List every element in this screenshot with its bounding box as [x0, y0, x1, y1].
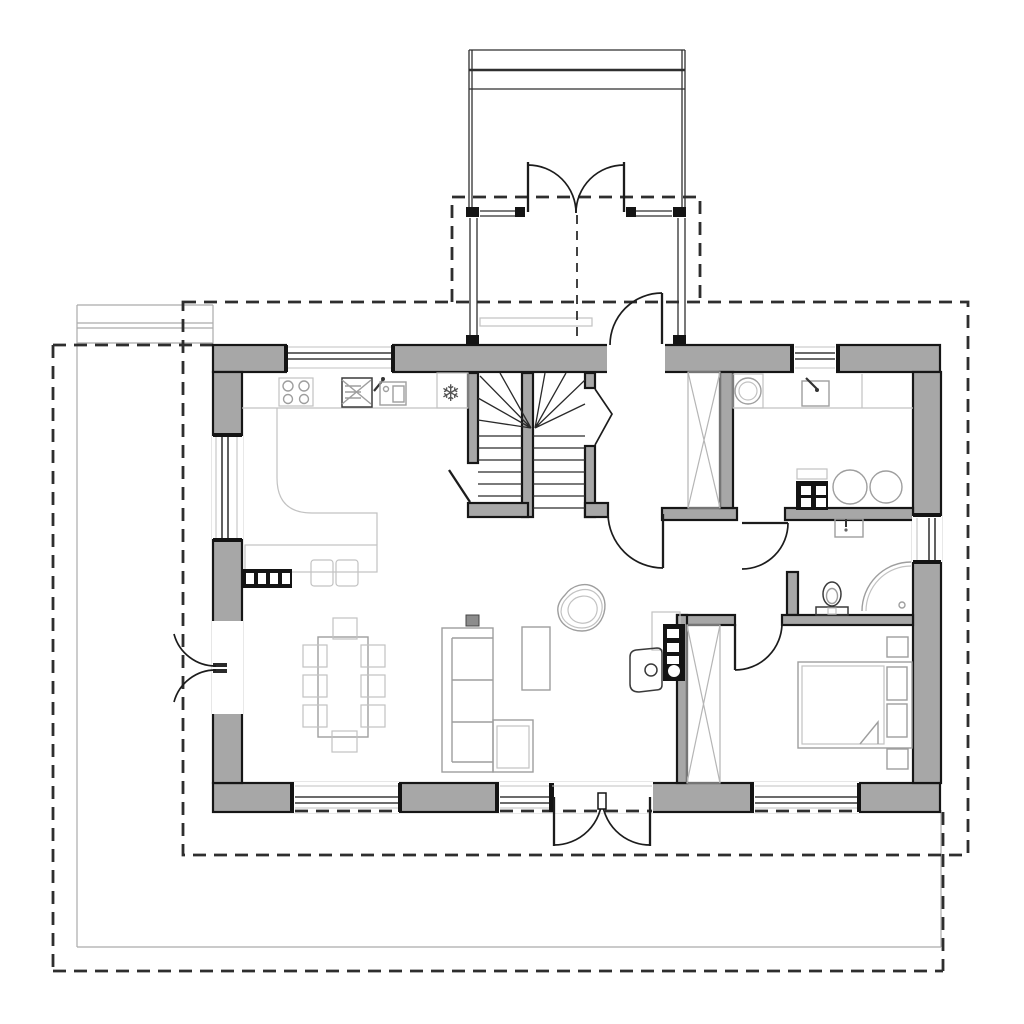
entry-mat — [480, 318, 592, 326]
wood-stove — [630, 648, 662, 692]
stair-south-wall-east — [585, 503, 608, 517]
wardrobe-shaft — [687, 625, 720, 783]
nightstand — [887, 637, 908, 657]
counter-return-edge — [277, 408, 377, 545]
shafts — [687, 372, 720, 783]
porch-post-base — [673, 335, 686, 345]
living-room — [442, 585, 685, 772]
dining-chair — [361, 645, 385, 667]
snowflake-icon: ❄ — [441, 381, 460, 407]
boiler-tanks — [833, 470, 902, 504]
duct-shaft — [688, 372, 720, 508]
stair-east-wall-top — [585, 373, 595, 388]
electrical-panel — [796, 481, 828, 510]
stair-treads-right-flight — [533, 436, 585, 508]
pillow — [887, 704, 907, 737]
kitchen-stair-door-leaf — [449, 470, 470, 502]
east-wall — [913, 372, 941, 783]
stair-spine-wall — [522, 373, 533, 517]
porch-side-walls — [469, 50, 685, 212]
pouf-chair — [558, 585, 605, 631]
kitchen: ❄ — [242, 373, 468, 586]
roof-dash-rect — [183, 302, 968, 855]
stair-west-wall — [468, 373, 478, 463]
porch-jamb-block — [626, 207, 636, 217]
wc-west-wall — [787, 572, 798, 615]
terrace-step-lines — [77, 323, 213, 343]
blanket-fold — [860, 722, 878, 744]
dining-chair — [303, 675, 327, 697]
bathroom-counter — [733, 374, 913, 408]
fireplace-unit — [630, 612, 685, 692]
interior-walls — [468, 372, 913, 783]
ground-slab-dashed-outline — [53, 345, 943, 971]
bedroom-door — [735, 623, 782, 670]
porch-post-base — [466, 335, 479, 345]
pillow — [887, 667, 907, 700]
porch-gate-swing-left — [528, 165, 576, 213]
bar-stool — [311, 560, 333, 586]
dining-chair — [361, 705, 385, 727]
roof-overhang-dashed-outline — [183, 197, 968, 855]
bathroom-faucet-icon — [806, 378, 817, 389]
oven — [342, 378, 372, 407]
exterior-walls — [213, 345, 941, 812]
shower-room — [816, 519, 911, 615]
porch-post-block — [466, 207, 479, 217]
washing-machine — [733, 374, 763, 408]
hall-south-wall — [662, 508, 737, 520]
fridge: ❄ — [437, 373, 468, 408]
radiator-cabinet — [242, 569, 292, 588]
bathroom-door — [742, 523, 788, 569]
floor-plan-drawing: ❄ — [0, 0, 1024, 1024]
living-room-door — [608, 514, 663, 568]
bedroom — [798, 637, 912, 769]
duct-east-wall — [720, 372, 733, 508]
bed — [798, 662, 912, 748]
shelf — [797, 469, 827, 479]
dining-chair — [361, 675, 385, 697]
dining-chair — [303, 645, 327, 667]
porch-post-block — [673, 207, 686, 217]
dining-chair — [332, 731, 357, 752]
bedroom-north-wall-east — [782, 615, 913, 625]
porch-jamb-block — [515, 207, 525, 217]
cooktop — [279, 378, 313, 406]
dining-area — [242, 569, 385, 752]
bathroom — [733, 374, 913, 510]
bathroom-sink — [802, 378, 829, 406]
hall-stair-door — [595, 389, 612, 445]
dining-chair — [333, 618, 357, 639]
floor-plan-canvas: ❄ — [0, 0, 1024, 1024]
side-table — [466, 615, 479, 626]
toilet — [816, 582, 848, 615]
stair-south-wall-west — [468, 503, 528, 517]
patio-door-mullion — [598, 793, 606, 809]
porch-gate-swing-right — [576, 165, 624, 213]
bar-stool — [336, 560, 358, 586]
dining-chair — [303, 705, 327, 727]
wc-sink — [835, 519, 863, 537]
sofa — [442, 628, 533, 772]
kitchen-sink — [380, 382, 406, 405]
corner-shower — [862, 562, 911, 611]
windows — [213, 345, 941, 812]
nightstand — [887, 749, 908, 769]
stair-treads-left-flight — [478, 436, 522, 496]
coffee-table — [522, 627, 550, 690]
wall-openings — [212, 343, 942, 813]
